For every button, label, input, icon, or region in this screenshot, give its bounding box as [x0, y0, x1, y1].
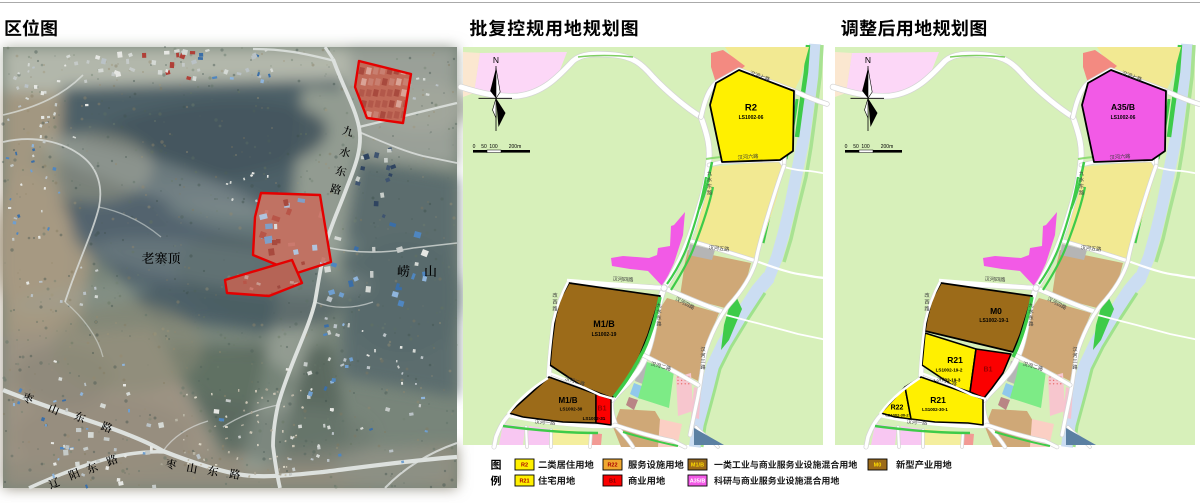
svg-text:LS1002-30-1: LS1002-30-1: [922, 407, 948, 412]
svg-text:A35/B: A35/B: [690, 478, 706, 484]
svg-text:M1/B: M1/B: [558, 396, 577, 405]
svg-text:R2: R2: [745, 102, 757, 113]
svg-text:100: 100: [861, 144, 870, 150]
svg-text:50: 50: [481, 144, 487, 150]
svg-text:R22: R22: [607, 462, 617, 468]
svg-text:200m: 200m: [509, 144, 522, 150]
svg-text:R21: R21: [519, 478, 529, 484]
svg-text:200m: 200m: [881, 144, 894, 150]
svg-text:LS1002-19-1: LS1002-19-1: [979, 318, 1008, 324]
svg-text:0: 0: [845, 144, 848, 150]
svg-text:R22: R22: [891, 404, 904, 411]
svg-text:B1: B1: [609, 478, 616, 484]
svg-text:LS1002-19: LS1002-19: [592, 332, 617, 338]
svg-text:LS1002-19-2: LS1002-19-2: [936, 368, 963, 373]
svg-text:M0: M0: [990, 306, 1002, 316]
svg-text:0: 0: [473, 144, 476, 150]
svg-text:R21: R21: [930, 395, 946, 405]
svg-text:N: N: [493, 55, 499, 65]
svg-text:B1: B1: [984, 366, 993, 373]
svg-text:LS1002-06: LS1002-06: [739, 115, 764, 121]
svg-text:LS1002-06: LS1002-06: [1111, 115, 1136, 121]
svg-text:N: N: [865, 55, 871, 65]
svg-text:M1/B: M1/B: [691, 462, 704, 468]
svg-text:100: 100: [489, 144, 498, 150]
svg-text:LS1002-30: LS1002-30: [560, 407, 583, 412]
svg-text:M1/B: M1/B: [593, 319, 615, 329]
svg-text:A35/B: A35/B: [1111, 102, 1135, 112]
svg-text:50: 50: [853, 144, 859, 150]
svg-text:R2: R2: [521, 462, 528, 468]
svg-text:M0: M0: [874, 462, 882, 468]
svg-text:LS1002-30-2: LS1002-30-2: [885, 412, 909, 417]
svg-text:LS1002-31: LS1002-31: [583, 416, 606, 421]
svg-text:B1: B1: [598, 405, 607, 412]
svg-text:R21: R21: [947, 355, 963, 365]
